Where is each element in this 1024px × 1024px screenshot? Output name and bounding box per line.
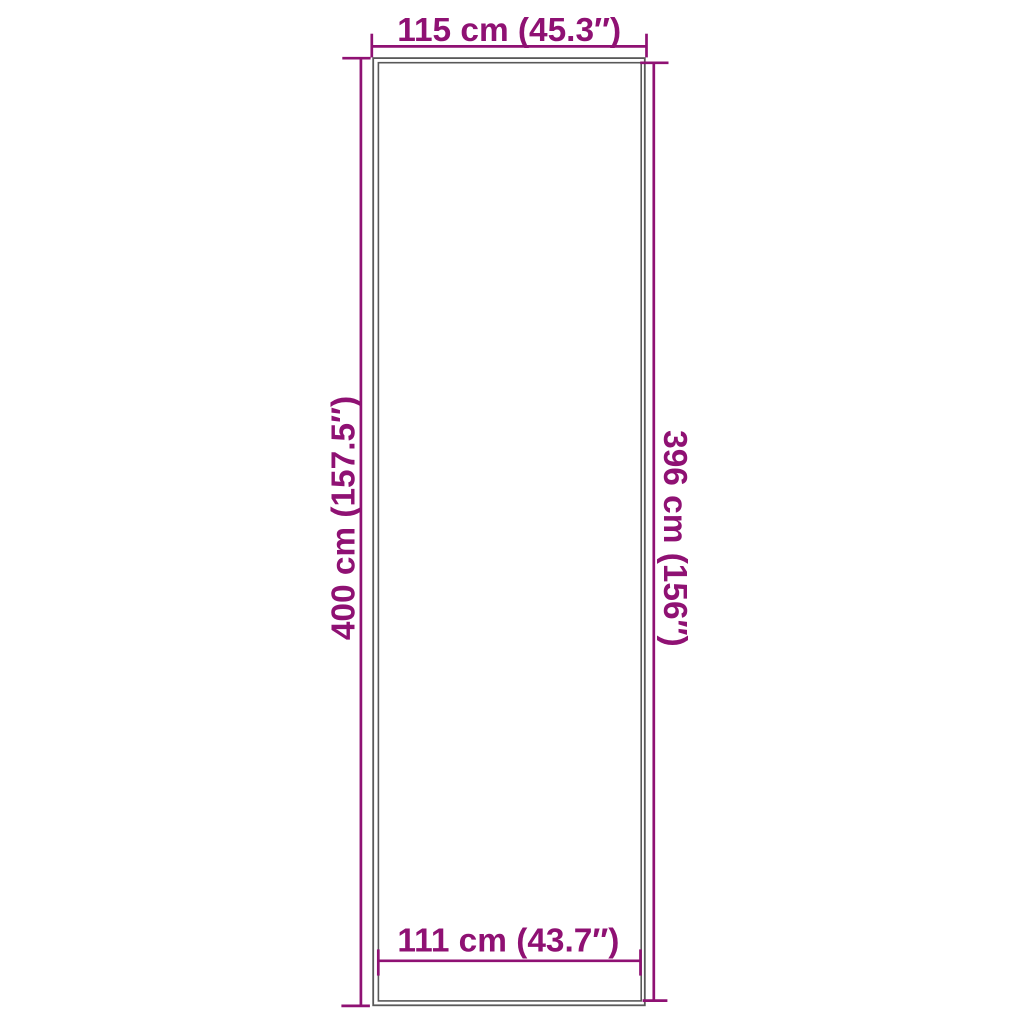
svg-text:396 cm (156″): 396 cm (156″) bbox=[656, 430, 693, 646]
svg-text:111 cm (43.7″): 111 cm (43.7″) bbox=[397, 923, 619, 960]
svg-text:115 cm (45.3″): 115 cm (45.3″) bbox=[397, 12, 621, 49]
svg-text:400 cm (157.5″): 400 cm (157.5″) bbox=[326, 396, 363, 640]
